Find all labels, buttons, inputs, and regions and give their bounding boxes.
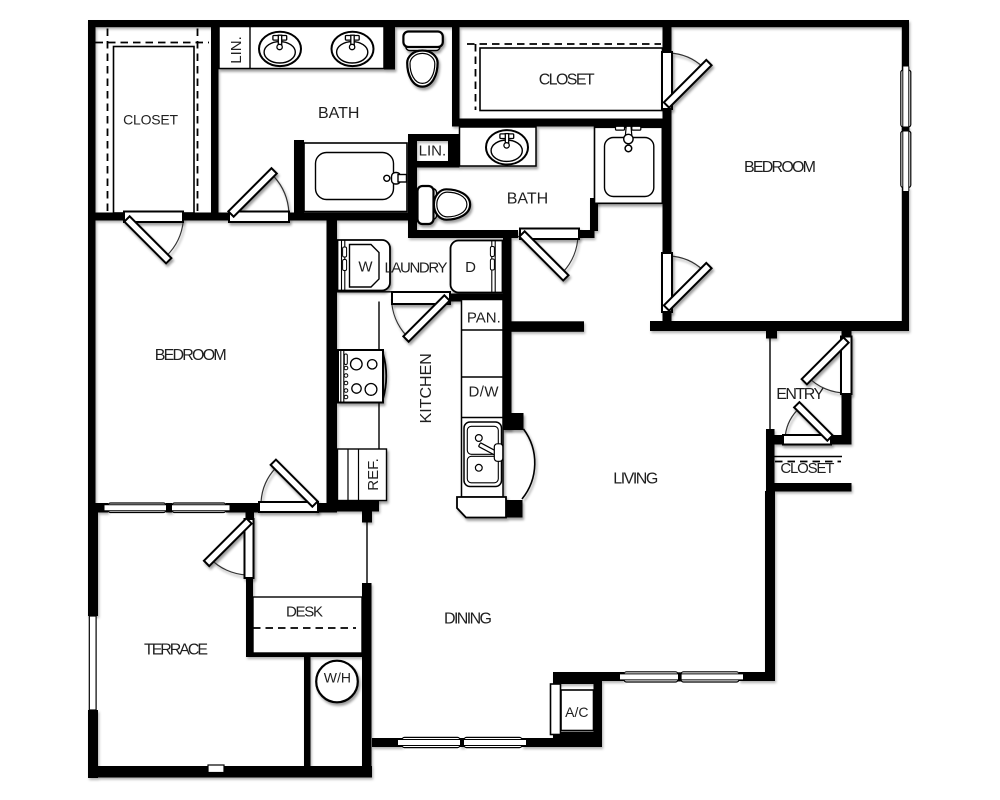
svg-text:DINING: DINING: [444, 611, 492, 628]
svg-text:W/H: W/H: [324, 669, 351, 685]
svg-text:LIVING: LIVING: [613, 471, 658, 488]
svg-text:ENTRY: ENTRY: [776, 386, 824, 403]
svg-text:TERRACE: TERRACE: [144, 642, 208, 659]
svg-text:REF.: REF.: [365, 458, 382, 491]
svg-text:CLOSET: CLOSET: [780, 460, 834, 477]
svg-text:D: D: [465, 259, 476, 276]
svg-text:BEDROOM: BEDROOM: [155, 347, 227, 364]
svg-text:BATH: BATH: [507, 191, 548, 208]
svg-text:W: W: [358, 259, 373, 276]
svg-text:LIN.: LIN.: [228, 36, 245, 64]
svg-text:LAUNDRY: LAUNDRY: [385, 260, 448, 277]
svg-text:CLOSET: CLOSET: [123, 112, 178, 128]
svg-text:PAN.: PAN.: [467, 310, 501, 327]
svg-text:LIN.: LIN.: [419, 143, 447, 160]
svg-text:KITCHEN: KITCHEN: [418, 353, 435, 423]
svg-text:CLOSET: CLOSET: [539, 72, 595, 89]
svg-text:D/W: D/W: [469, 384, 500, 401]
svg-text:A/C: A/C: [565, 704, 588, 720]
svg-text:BEDROOM: BEDROOM: [744, 159, 816, 176]
svg-text:DESK: DESK: [286, 604, 323, 621]
svg-text:BATH: BATH: [318, 105, 359, 122]
